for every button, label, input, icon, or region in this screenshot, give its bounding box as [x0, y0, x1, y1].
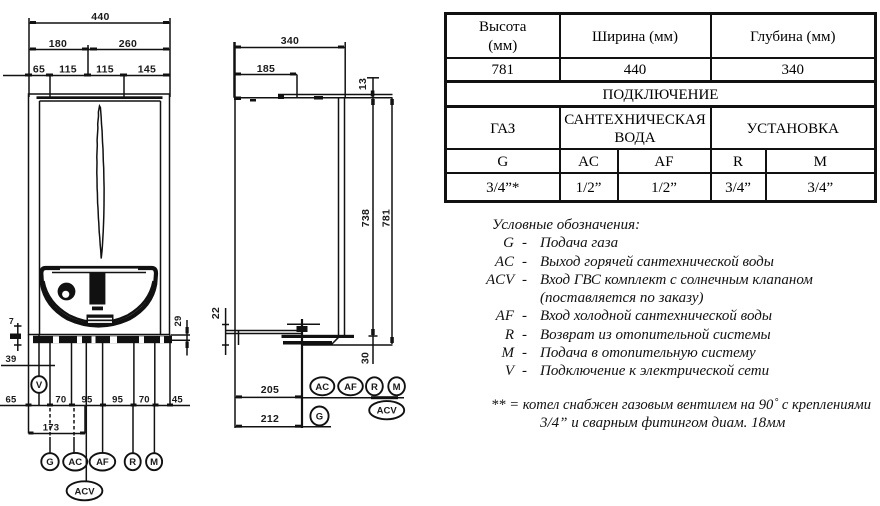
svg-text:AF: AF — [344, 382, 357, 393]
svg-text:R: R — [371, 382, 378, 393]
svg-text:G: G — [316, 412, 323, 423]
svg-text:340: 340 — [281, 35, 299, 47]
svg-text:ACV: ACV — [74, 486, 95, 497]
svg-text:13: 13 — [357, 78, 369, 90]
svg-text:212: 212 — [261, 413, 279, 425]
svg-text:30: 30 — [360, 352, 372, 364]
svg-text:M: M — [393, 382, 401, 393]
svg-text:65: 65 — [6, 395, 17, 406]
svg-text:205: 205 — [261, 384, 279, 396]
svg-text:440: 440 — [91, 11, 109, 23]
svg-text:45: 45 — [172, 395, 183, 406]
svg-text:70: 70 — [55, 395, 66, 406]
svg-text:115: 115 — [59, 64, 77, 76]
svg-text:AC: AC — [68, 457, 82, 468]
svg-text:65: 65 — [33, 64, 45, 76]
svg-text:AC: AC — [315, 382, 329, 393]
svg-text:29: 29 — [173, 316, 184, 327]
svg-text:R: R — [129, 457, 136, 468]
svg-text:39: 39 — [6, 354, 17, 365]
svg-text:180: 180 — [49, 38, 67, 50]
svg-text:ACV: ACV — [377, 406, 398, 417]
svg-text:95: 95 — [112, 395, 123, 406]
svg-text:7: 7 — [9, 316, 14, 326]
svg-text:95: 95 — [82, 395, 93, 406]
svg-text:G: G — [46, 457, 53, 468]
svg-text:115: 115 — [96, 64, 114, 76]
svg-text:145: 145 — [138, 64, 156, 76]
svg-text:V: V — [36, 380, 43, 391]
svg-text:173: 173 — [43, 423, 59, 434]
svg-text:781: 781 — [381, 209, 393, 227]
svg-text:AF: AF — [96, 457, 109, 468]
svg-text:22: 22 — [210, 307, 222, 319]
svg-text:70: 70 — [139, 395, 150, 406]
svg-text:260: 260 — [119, 38, 137, 50]
svg-text:M: M — [150, 457, 158, 468]
svg-text:185: 185 — [257, 63, 275, 75]
svg-text:738: 738 — [360, 209, 372, 227]
